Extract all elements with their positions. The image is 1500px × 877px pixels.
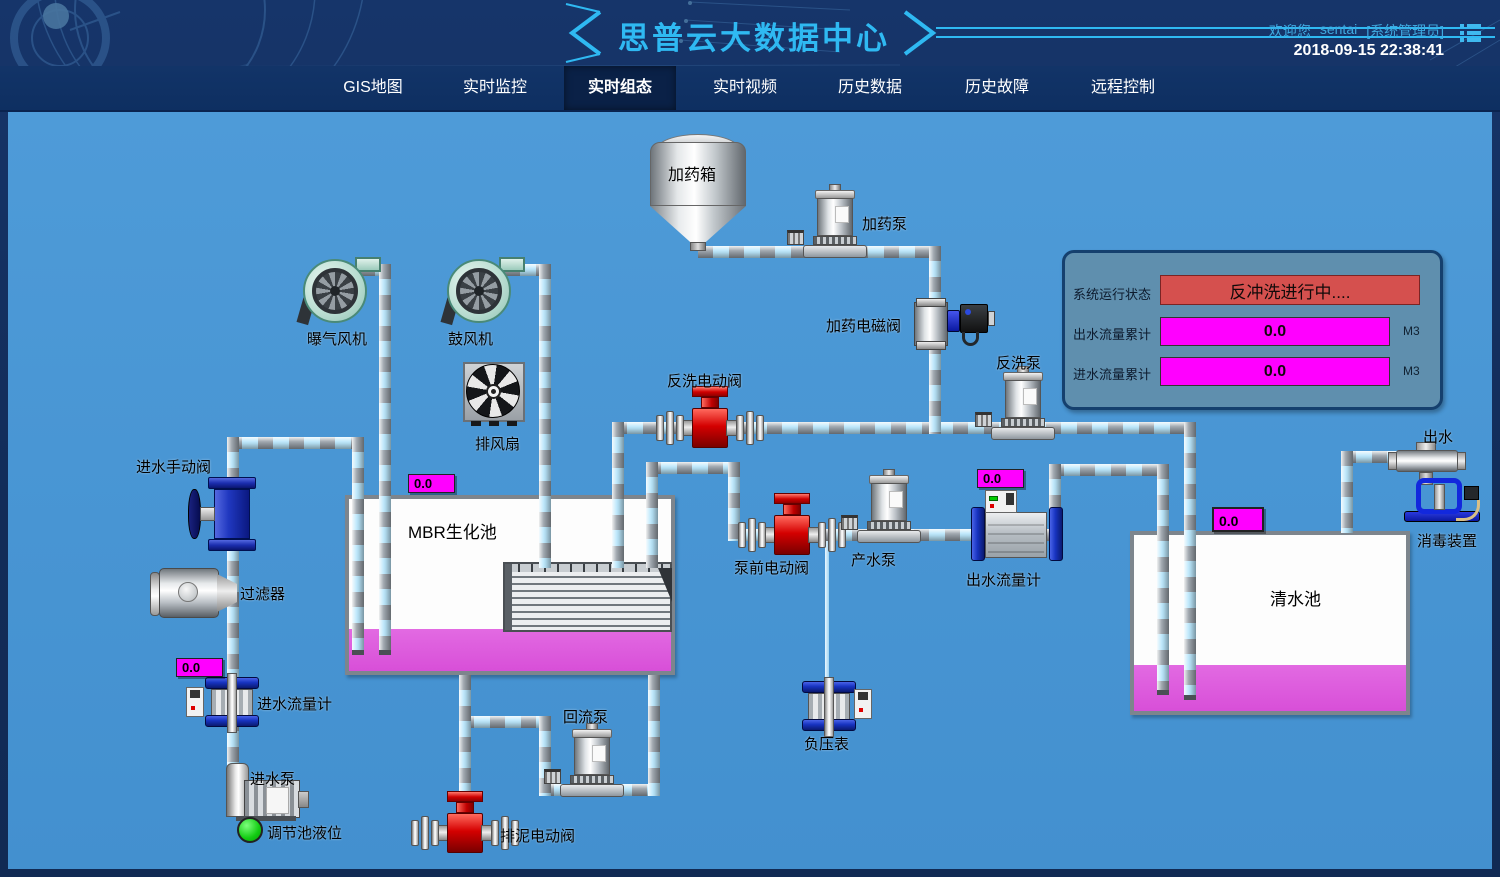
meter-bar: [227, 673, 237, 733]
control-display: [1006, 493, 1014, 505]
exhaust-fan-label: 排风扇: [475, 433, 520, 454]
pump-junction-box: [544, 769, 561, 784]
dosing-solenoid-valve-label: 加药电磁阀: [826, 315, 901, 336]
tab-realtime-monitor[interactable]: 实时监控: [439, 66, 551, 110]
inlet-pump-label: 进水泵: [250, 768, 295, 789]
product-pump-label: 产水泵: [851, 549, 896, 570]
tab-realtime-mimic[interactable]: 实时组态: [564, 66, 676, 110]
dosing-tank-outlet: [690, 242, 706, 251]
pipe-segment: [1341, 451, 1353, 533]
inlet-manual-valve-label: 进水手动阀: [136, 456, 211, 477]
valve-cap: [447, 791, 483, 802]
page-title: 思普云大数据中心: [618, 13, 890, 58]
meter-flange: [1049, 507, 1063, 561]
process-diagram: 系统运行状态 反冲洗进行中.... 出水流量累计 0.0 M3 进水流量累计 0…: [8, 112, 1492, 869]
valve-flange: [738, 522, 746, 548]
pipe-segment: [612, 422, 624, 568]
inlet-flow-meter: [203, 677, 261, 729]
blower: [447, 255, 525, 327]
pump-patch: [592, 745, 606, 762]
inlet-total-unit: M3: [1403, 364, 1420, 378]
valve-flange: [421, 816, 429, 850]
product-water-pump: [857, 469, 921, 543]
dosing-tank: [650, 134, 746, 252]
meter-bar: [824, 677, 834, 737]
welcome-prefix: 欢迎您: [1269, 21, 1311, 41]
prepump-valve-label: 泵前电动阀: [734, 557, 809, 578]
pump-patch: [835, 206, 849, 223]
nav-bar: GIS地图 实时监控 实时组态 实时视频 历史数据 历史故障 远程控制: [0, 66, 1500, 112]
valve-flange: [756, 415, 764, 441]
pump-base: [991, 427, 1055, 440]
blower-hub: [330, 286, 340, 296]
pipe-segment: [1157, 464, 1169, 695]
green-led: [989, 496, 998, 501]
system-status-label: 系统运行状态: [1073, 284, 1151, 303]
pump-base: [857, 530, 921, 543]
pipe-segment: [1049, 464, 1169, 476]
red-led: [990, 504, 994, 508]
valve-flange: [666, 411, 674, 445]
pump-junction-box: [975, 412, 992, 427]
backwash-electric-valve: [652, 386, 768, 448]
meter-control-box: [854, 689, 872, 719]
datetime: 2018-09-15 22:38:41: [1294, 42, 1444, 60]
outlet-total-label: 出水流量累计: [1073, 324, 1151, 343]
sensor-line: [825, 541, 829, 687]
device-box: [1464, 486, 1479, 500]
username: sentai: [1320, 21, 1357, 41]
mbr-flow-readout: 0.0: [408, 474, 455, 493]
fan-feet: [471, 421, 517, 426]
reflux-pump-label: 回流泵: [563, 706, 608, 727]
inlet-total-label: 进水流量累计: [1073, 364, 1151, 383]
valve-stem: [456, 802, 474, 813]
valve-stem: [783, 504, 801, 515]
valve-flange: [916, 341, 946, 350]
pipe-segment: [539, 264, 551, 568]
tee-nut: [1388, 452, 1397, 470]
tee-body: [1396, 450, 1458, 472]
vacuum-gauge: [800, 681, 858, 733]
backwash-valve-label: 反洗电动阀: [667, 370, 742, 391]
red-led: [859, 708, 863, 712]
pipe-end-cap: [379, 650, 391, 655]
pipe-segment: [539, 716, 551, 796]
valve-coupler: [947, 310, 960, 332]
valve-body: [914, 302, 948, 346]
pipe-segment: [646, 462, 658, 568]
valve-flange: [736, 415, 744, 441]
valve-flange: [818, 522, 826, 548]
control-display: [190, 690, 200, 698]
valve-body: [447, 813, 483, 853]
pump-fitting: [298, 791, 309, 808]
pipe-segment: [1184, 422, 1196, 700]
system-status-value: 反冲洗进行中....: [1160, 275, 1420, 305]
valve-flange: [208, 477, 256, 489]
pump-neck: [1001, 418, 1045, 427]
pipe-segment: [352, 437, 364, 655]
valve-cap: [988, 311, 995, 326]
menu-list-icon-row: [1460, 31, 1482, 35]
user-role: [系统管理员]: [1366, 21, 1444, 41]
filter-emblem: [178, 582, 198, 602]
valve-body: [774, 515, 810, 555]
pump-base: [560, 784, 624, 797]
valve-stem: [200, 507, 215, 521]
valve-flange: [208, 539, 256, 551]
mbr-tank-liquid: [349, 629, 671, 671]
dosing-tank-label: 加药箱: [668, 161, 716, 185]
vacuum-gauge-label: 负压表: [804, 733, 849, 754]
tab-remote-control[interactable]: 远程控制: [1067, 66, 1179, 110]
meter-control-box: [985, 490, 1017, 513]
aeration-blower-label: 曝气风机: [307, 328, 367, 349]
regulating-tank-level-label: 调节池液位: [267, 822, 342, 843]
pump-patch: [1023, 388, 1037, 405]
clean-tank-readout: 0.0: [1212, 507, 1264, 532]
device-bar: [1434, 484, 1445, 510]
clean-water-tank: [1130, 531, 1410, 715]
outlet-total-value: 0.0: [1160, 317, 1390, 346]
valve-flange: [491, 820, 499, 846]
pump-base: [803, 245, 867, 258]
tab-history-fault[interactable]: 历史故障: [941, 66, 1053, 110]
clean-tank-label: 清水池: [1270, 585, 1321, 610]
inlet-total-value: 0.0: [1160, 357, 1390, 386]
valve-flange: [411, 820, 419, 846]
menu-list-icon-row: [1460, 24, 1482, 28]
pipe-end-cap: [352, 650, 364, 655]
reflux-pump: [560, 723, 624, 797]
regulating-tank-level-indicator: [237, 817, 263, 843]
control-display: [858, 692, 868, 700]
pump-neck: [867, 521, 911, 530]
valve-flange: [656, 415, 664, 441]
membrane-module: [503, 562, 672, 632]
disinfection-label: 消毒装置: [1417, 530, 1477, 551]
pump-neck: [570, 775, 614, 784]
prepump-electric-valve: [734, 493, 850, 555]
inlet-flow-meter-label: 进水流量计: [257, 693, 332, 714]
welcome-line: 欢迎您 sentai [系统管理员]: [1269, 21, 1444, 41]
pipe-segment: [459, 716, 551, 728]
dosing-tank-cone: [650, 206, 746, 243]
tee-nut: [1457, 452, 1466, 470]
tab-gis-map[interactable]: GIS地图: [317, 66, 429, 110]
fan-hub: [486, 384, 501, 399]
status-panel: 系统运行状态 反冲洗进行中.... 出水流量累计 0.0 M3 进水流量累计 0…: [1062, 250, 1443, 410]
red-led: [191, 706, 195, 710]
tab-realtime-video[interactable]: 实时视频: [689, 66, 801, 110]
aeration-blower: [303, 255, 381, 327]
meter-control-box: [186, 687, 204, 717]
tab-history-data[interactable]: 历史数据: [814, 66, 926, 110]
dosing-pump: [803, 184, 867, 258]
backwash-pump: [991, 366, 1055, 440]
inlet-manual-valve: [188, 477, 258, 553]
outlet-flow-meter-label: 出水流量计: [966, 569, 1041, 590]
outlet-total-unit: M3: [1403, 324, 1420, 338]
pipe-end-cap: [1184, 695, 1196, 700]
pump-junction-box: [787, 230, 804, 245]
valve-actuator: [960, 304, 988, 333]
pump-patch: [889, 491, 903, 508]
valve-flange: [916, 298, 946, 307]
valve-flange: [828, 518, 836, 552]
valve-body: [692, 408, 728, 448]
dosing-pump-label: 加药泵: [862, 213, 907, 234]
valve-flange: [748, 518, 756, 552]
outlet-label: 出水: [1423, 426, 1453, 447]
outlet-flow-readout: 0.0: [977, 469, 1024, 488]
valve-cap: [774, 493, 810, 504]
disinfection-device: [1404, 478, 1484, 524]
filter-label: 过滤器: [240, 583, 285, 604]
valve-stem: [701, 397, 719, 408]
dosing-solenoid-valve: [914, 298, 998, 350]
blower-hub: [474, 286, 484, 296]
pipe-segment: [227, 437, 364, 449]
valve-body: [214, 489, 250, 539]
clean-water-tank-liquid: [1134, 665, 1406, 711]
menu-list-icon-row: [1460, 38, 1482, 42]
mbr-tank-label: MBR生化池: [408, 518, 497, 543]
filter-cone: [217, 574, 237, 612]
pipe-end-cap: [1157, 690, 1169, 695]
backwash-pump-label: 反洗泵: [996, 352, 1041, 373]
valve-cable: [962, 332, 979, 346]
inlet-flow-readout: 0.0: [176, 658, 223, 677]
meter-flange: [971, 507, 985, 561]
filter-vessel: [150, 566, 240, 620]
pipe-segment: [646, 462, 740, 474]
valve-flange: [746, 411, 754, 445]
exhaust-fan: [463, 362, 525, 428]
blower-label: 鼓风机: [448, 328, 493, 349]
pipe-segment: [648, 675, 660, 796]
meter-body: [985, 512, 1047, 558]
menu-list-icon[interactable]: [1460, 24, 1482, 42]
pump-neck: [813, 236, 857, 245]
sludge-valve-label: 排泥电动阀: [500, 825, 575, 846]
outlet-flow-meter: [971, 505, 1063, 563]
pump-junction-box: [841, 515, 858, 530]
pump-patch: [266, 787, 289, 814]
